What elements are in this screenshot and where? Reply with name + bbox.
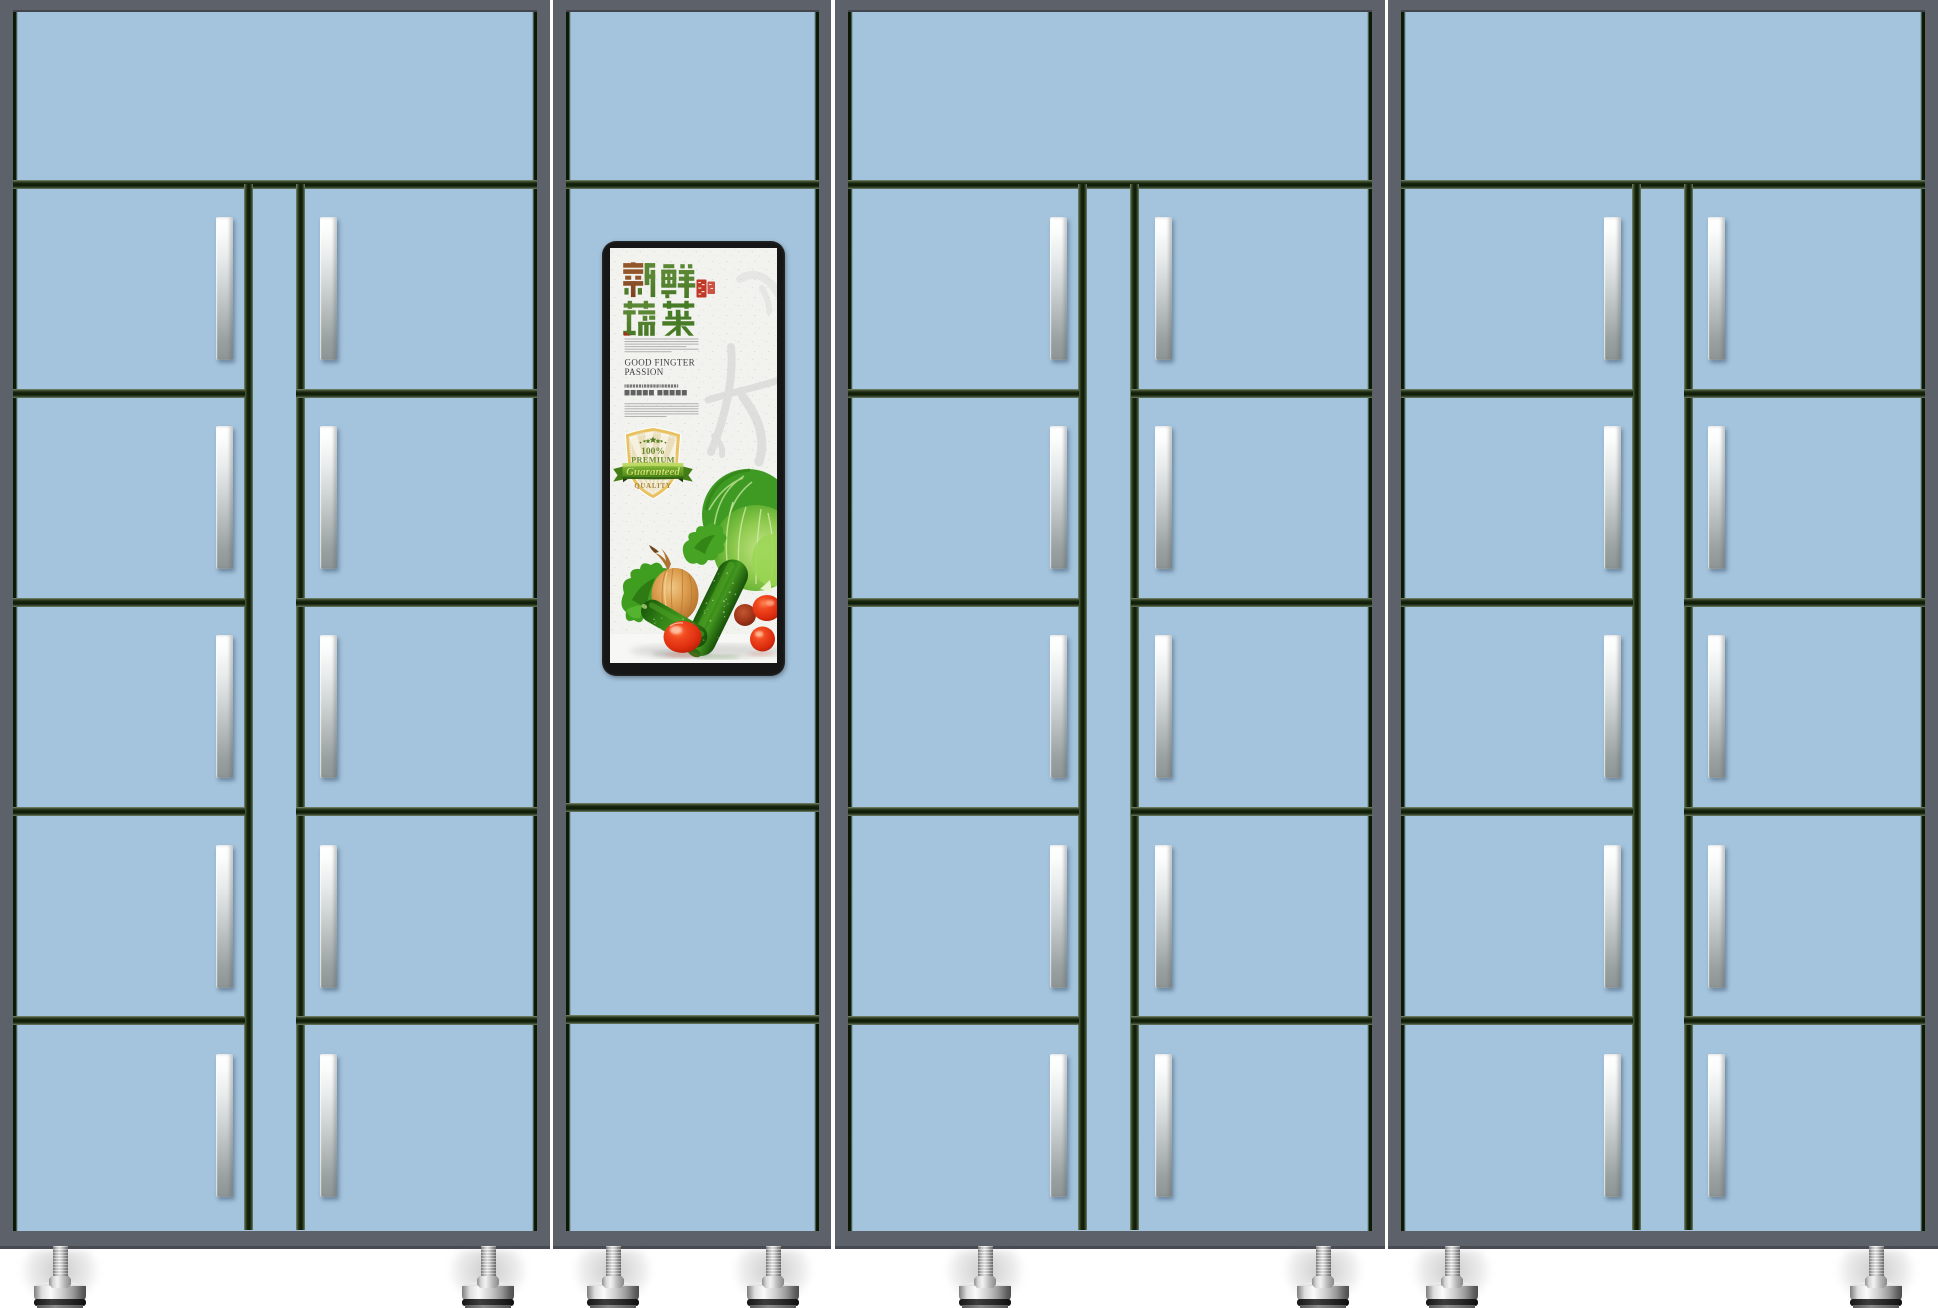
svg-text:Guaranteed: Guaranteed — [626, 466, 680, 478]
svg-text:PASSION: PASSION — [624, 367, 663, 377]
svg-text:QUALITY: QUALITY — [634, 483, 671, 490]
svg-text:GOOD FINGTER: GOOD FINGTER — [624, 358, 694, 368]
